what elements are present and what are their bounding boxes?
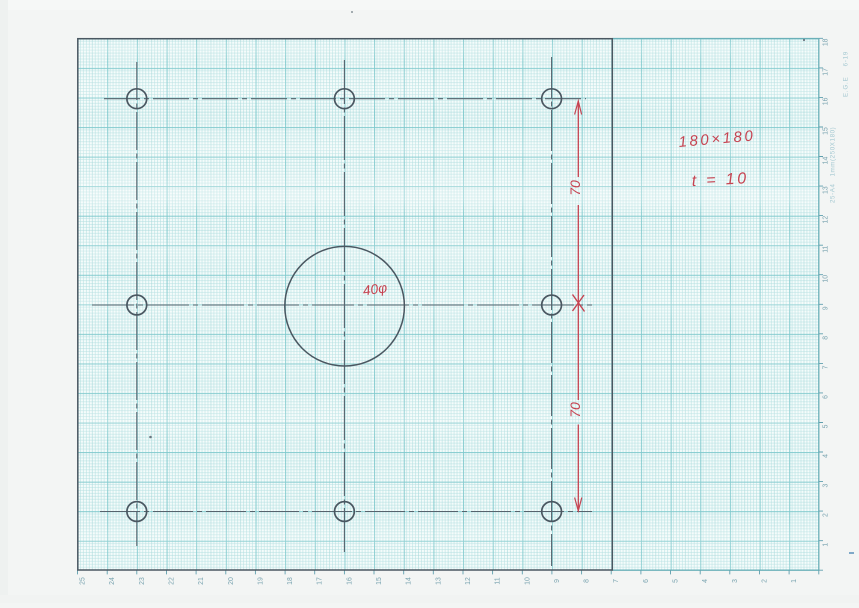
svg-text:9: 9 (554, 579, 561, 583)
svg-text:5: 5 (673, 579, 680, 583)
svg-text:25-A4 1mm(250X180): 25-A4 1mm(250X180) (830, 127, 837, 203)
svg-text:16: 16 (346, 577, 353, 585)
svg-text:18: 18 (823, 38, 830, 46)
svg-text:7: 7 (613, 579, 620, 583)
svg-text:19: 19 (257, 577, 264, 585)
svg-text:7: 7 (823, 365, 830, 369)
svg-text:21: 21 (198, 577, 205, 585)
svg-text:23: 23 (139, 577, 146, 585)
svg-text:3: 3 (732, 579, 739, 583)
svg-text:4: 4 (702, 579, 709, 583)
svg-text:6: 6 (823, 395, 830, 399)
svg-text:12: 12 (465, 577, 472, 585)
svg-text:17: 17 (823, 68, 830, 76)
svg-text:1: 1 (791, 579, 798, 583)
svg-text:17: 17 (317, 577, 324, 585)
svg-text:20: 20 (228, 577, 235, 585)
svg-text:2: 2 (823, 513, 830, 517)
svg-text:15: 15 (376, 577, 383, 585)
svg-text:6: 6 (643, 579, 650, 583)
svg-text:9: 9 (823, 306, 830, 310)
svg-text:8: 8 (584, 579, 591, 583)
svg-text:11: 11 (495, 577, 502, 584)
svg-text:14: 14 (406, 577, 413, 585)
svg-text:2: 2 (762, 579, 769, 583)
svg-text:18: 18 (287, 577, 294, 585)
svg-text:13: 13 (435, 577, 442, 585)
svg-text:22: 22 (169, 577, 176, 585)
svg-text:70: 70 (567, 402, 583, 418)
svg-text:10: 10 (823, 275, 830, 283)
svg-text:12: 12 (823, 216, 830, 224)
svg-text:10: 10 (524, 577, 531, 585)
svg-text:24: 24 (109, 577, 116, 585)
svg-text:t = 10: t = 10 (691, 170, 749, 190)
svg-text:8: 8 (823, 336, 830, 340)
svg-text:5: 5 (823, 424, 830, 428)
svg-text:3: 3 (823, 484, 830, 488)
svg-text:4: 4 (823, 454, 830, 458)
svg-text:1: 1 (823, 543, 830, 547)
svg-text:11: 11 (823, 245, 830, 252)
svg-text:E.G.E 6-19: E.G.E 6-19 (843, 51, 850, 97)
svg-text:16: 16 (823, 97, 830, 105)
svg-text:70: 70 (567, 180, 583, 196)
svg-text:25: 25 (80, 577, 87, 585)
